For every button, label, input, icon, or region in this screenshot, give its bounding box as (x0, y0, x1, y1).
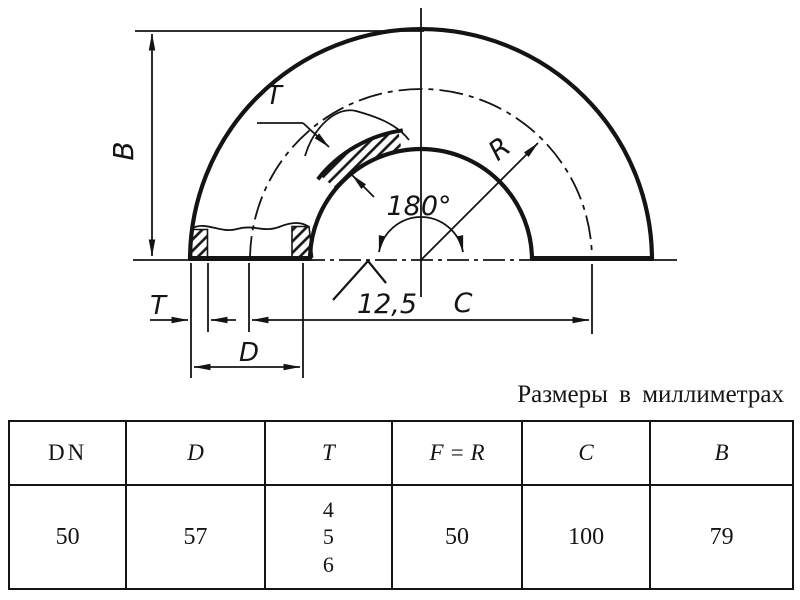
value-d: 57 (127, 486, 265, 588)
value-t-1: 4 (323, 496, 334, 524)
value-b: 79 (651, 486, 792, 588)
label-roughness: 12,5 (357, 289, 417, 320)
dimensions-table: DN D T F = R C B 50 57 4 5 6 50 100 79 (8, 420, 794, 590)
drawing-sheet: B T T D C R 180° 12,5 Размеры в миллимет… (0, 0, 800, 600)
value-c: 100 (523, 486, 651, 588)
label-t-end: T (150, 291, 168, 321)
value-f-r: 50 (393, 486, 523, 588)
col-header-f-r: F = R (393, 422, 523, 486)
value-t-2: 5 (323, 523, 334, 551)
wall-section-hatch (321, 131, 402, 189)
label-r: R (483, 131, 517, 167)
label-b: B (107, 141, 140, 160)
col-header-c: C (523, 422, 651, 486)
value-t: 4 5 6 (266, 486, 393, 588)
col-header-dn: DN (10, 422, 127, 486)
col-header-t: T (266, 422, 393, 486)
label-d: D (239, 338, 259, 368)
col-header-b: B (651, 422, 792, 486)
col-header-d: D (127, 422, 265, 486)
label-angle: 180° (386, 191, 451, 222)
label-t-section: T (266, 81, 284, 111)
units-caption: Размеры в миллиметрах (517, 381, 784, 409)
value-dn: 50 (10, 486, 127, 588)
return-bend-drawing: B T T D C R 180° 12,5 (0, 0, 800, 418)
label-c: C (454, 288, 473, 319)
value-t-3: 6 (323, 551, 334, 579)
end-wall-hatch-left (192, 230, 208, 258)
